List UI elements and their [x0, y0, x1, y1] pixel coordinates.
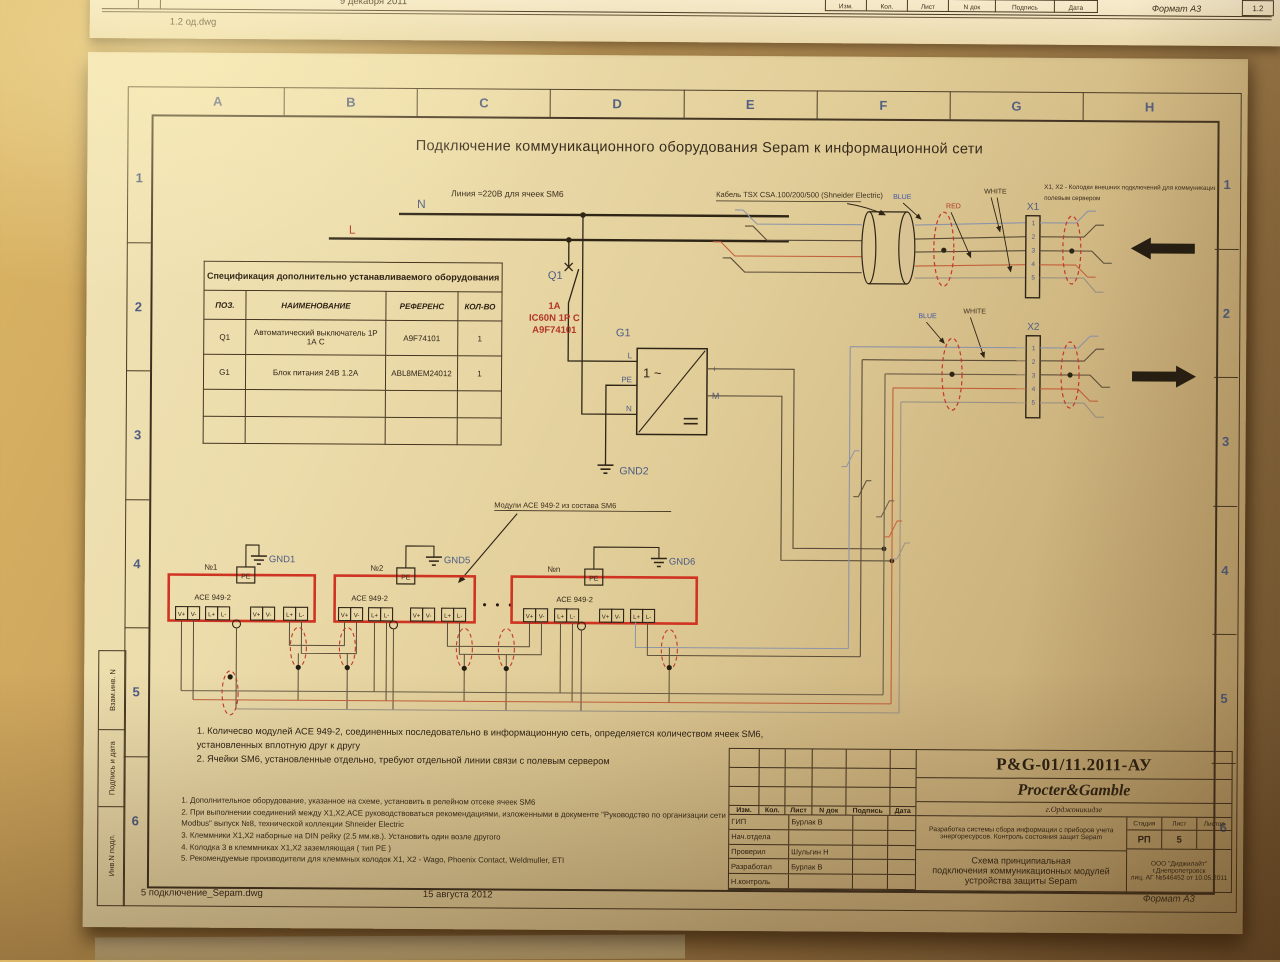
company-name: Procter&Gamble [916, 778, 1231, 804]
terminal-label: L+ [444, 614, 451, 620]
x2-pin-numbers: 12345 [1032, 345, 1036, 406]
revision-empty-cell [730, 749, 760, 767]
signature-role: ГИП [729, 815, 789, 829]
x-note-line1: X1, X2 - Колодки внешних подключений для… [1044, 183, 1215, 192]
signature-role: Нач.отдела [729, 830, 789, 844]
frame-column-letter: A [152, 86, 284, 115]
terminal-label: L- [570, 614, 575, 620]
cable-leader-arrow [847, 204, 885, 215]
frame-row-number: 4 [124, 499, 149, 628]
revision-header-cell: Дата [890, 807, 915, 815]
wire-N-label: N [417, 197, 426, 211]
revision-empty-cell [846, 788, 890, 806]
x1-pin-numbers: 12345 [1031, 220, 1035, 281]
paper-edge-bottom [95, 934, 685, 961]
top-sheet: Изм.Кол.ЛистN докПодписьДата 1.2 9 декаб… [90, 0, 1280, 46]
stage-header-cell: Листов [1197, 818, 1231, 830]
terminal-label: L+ [633, 615, 640, 621]
stage-header-cell: Стадия [1127, 817, 1162, 829]
pe-ground-wire [594, 547, 659, 569]
side-stamp-cells: Взам.инв. NПодпись и датаИнв.N подл. [97, 650, 127, 906]
stage-values: РП5 [1127, 830, 1231, 850]
g1-terminal-PE: PE [621, 375, 632, 384]
top-sheet-number: 1.2 [1242, 0, 1274, 16]
pin-number: 4 [1031, 261, 1035, 268]
revision-empty-cell [890, 788, 915, 806]
modules-note-underline [494, 510, 671, 511]
terminal-label: L- [646, 615, 651, 621]
revision-empty-row [730, 768, 916, 788]
line220-label: Линия ≈220В для ячеек SM6 [451, 188, 564, 199]
blue-label-x1: BLUE [893, 194, 912, 201]
signature-date [888, 860, 915, 874]
project-description: Разработка системы сбора информации с пр… [916, 816, 1126, 851]
ground-icon [426, 557, 442, 565]
title-block-signatures: Изм.Кол.ЛистN докПодписьДата ГИПБурлак В… [729, 749, 917, 890]
pin-number: 2 [1032, 359, 1036, 366]
x2-right-wires [1040, 336, 1110, 417]
stage-value-cell: 5 [1162, 831, 1197, 849]
frame-column-letter: G [949, 91, 1082, 120]
side-stamp-cell: Взам.инв. N [99, 651, 125, 730]
terminal-label: V- [191, 612, 197, 618]
revision-empty-cell [760, 749, 786, 767]
signature-sign [853, 845, 888, 859]
revision-empty-cell [760, 768, 786, 786]
revision-empty-cell [786, 787, 812, 805]
terminal-label: V- [426, 614, 432, 620]
top-sheet-date: 9 декабря 2011 [340, 0, 407, 7]
terminal-label: L+ [557, 614, 564, 620]
twisted-pair-symbols [222, 627, 678, 718]
module-number: №1 [204, 563, 218, 572]
cable-label-underline [716, 201, 861, 202]
blue-label-x2: BLUE [918, 313, 937, 320]
terminal-label: L- [221, 612, 226, 618]
terminal-label: V+ [341, 613, 349, 619]
title-block-main: P&G-01/11.2011-АУ Procter&Gamble г.Орджо… [916, 750, 1232, 892]
revision-empty-cell [786, 768, 812, 786]
side-stamp-cell: Подпись и дата [98, 730, 124, 807]
frame-column-letter: E [683, 90, 816, 119]
terminal-label: L+ [371, 613, 378, 619]
wire-color-leaders-x2 [926, 317, 984, 357]
arrow-left-icon [1131, 237, 1195, 259]
revision-empty-row [730, 749, 916, 769]
frame-column-letter: F [816, 90, 949, 119]
signature-role: Н.контроль [729, 874, 789, 888]
frame-row-number: 5 [124, 627, 149, 756]
signature-role: Проверил [729, 845, 789, 859]
sheet-title: Схема принципиальная подключения коммуни… [916, 850, 1126, 891]
top-sheet-stamp-col: Изм. [825, 0, 867, 11]
module-number: №2 [370, 564, 384, 573]
frame-column-letter: B [284, 87, 417, 116]
top-sheet-stamp-col: Кол. [867, 0, 908, 12]
revision-header-cell: Кол. [760, 806, 786, 814]
stage-header-cell: Лист [1162, 818, 1197, 830]
footer-date: 15 августа 2012 [423, 889, 493, 900]
signature-name: Бурлак В [789, 860, 853, 874]
frame-column-letter: H [1082, 92, 1215, 121]
main-sheet: ABCDEFGH 123456 123456 Взам.инв. NПодпис… [83, 52, 1248, 934]
terminal-label: L- [384, 613, 389, 619]
x2-label: X2 [1027, 322, 1040, 333]
revision-header-cell: Лист [786, 806, 812, 814]
pin-number: 1 [1032, 345, 1036, 352]
frame-row-number: 6 [123, 756, 148, 885]
organization: ООО "Диджилайт" г.Днепропетровск лиц. АГ… [1127, 849, 1231, 892]
description-cells: Разработка системы сбора информации с пр… [916, 816, 1127, 891]
module-number: №n [547, 565, 560, 574]
revision-empty-cell [890, 769, 915, 787]
top-sheet-format: Формат А3 [1152, 3, 1201, 13]
red-label-x1: RED [946, 203, 961, 210]
frame-column-letter: D [550, 89, 683, 118]
frame-row-number: 2 [126, 242, 151, 371]
terminal-label: V+ [413, 613, 421, 619]
x1-right-wires [1040, 211, 1112, 292]
revision-empty-cell [730, 768, 760, 786]
signature-name: Бурлак В [789, 815, 853, 829]
side-stamp-label: Взам.инв. N [107, 669, 116, 711]
x1-label: X1 [1027, 202, 1040, 213]
terminal-label: L+ [208, 612, 215, 618]
revision-empty-cell [812, 749, 846, 767]
q1-rating: 1А [548, 301, 560, 312]
terminal-label: V+ [253, 613, 261, 619]
ground-icon [651, 558, 667, 566]
cable-symbol [713, 210, 915, 284]
revision-empty-cell [847, 750, 891, 768]
signature-date [888, 831, 915, 845]
x2-feed-wires [850, 338, 1026, 411]
frame-row-number: 3 [125, 370, 150, 499]
modules-note: Модули АСЕ 949-2 из состава SM6 [494, 500, 616, 510]
pin-number: 4 [1032, 386, 1036, 393]
q1-label: Q1 [548, 270, 563, 282]
modules-note-arrow [459, 513, 517, 582]
module-device-name: АСЕ 949-2 [351, 594, 388, 603]
module-device-name: АСЕ 949-2 [556, 595, 593, 604]
wire-L-label: L [349, 223, 356, 237]
revision-rows [729, 749, 915, 807]
signature-row: ГИПБурлак В [729, 815, 915, 831]
ace-modules: №1АСЕ 949-2PEGND1V+V-L+L-V+V-L+L-№2АСЕ 9… [168, 545, 696, 631]
signature-role: Разработал [729, 859, 789, 873]
pe-terminal-label: PE [401, 574, 411, 581]
terminal-label: V- [539, 614, 545, 620]
signature-row: Нач.отдела [729, 830, 915, 846]
pin-number: 2 [1032, 234, 1036, 241]
revision-empty-cell [846, 769, 890, 787]
frame-row-number: 1 [127, 114, 152, 242]
stage-headers: СтадияЛистЛистов [1127, 817, 1231, 831]
stage-value-cell: РП [1127, 830, 1162, 848]
signature-row: РазработалБурлак В [729, 859, 915, 875]
signature-sign [853, 860, 888, 874]
pin-number: 1 [1032, 220, 1036, 227]
stage-value-cell [1197, 831, 1231, 849]
g1-terminal-L: L [628, 351, 633, 360]
trunk-risers [840, 347, 911, 713]
side-stamp-label: Инв.N подл. [106, 834, 115, 876]
revision-empty-cell [729, 787, 759, 805]
q1-ref: A9F74101 [532, 325, 577, 336]
top-sheet-stamp-col: Подпись [996, 0, 1055, 13]
ground-label: GND5 [444, 555, 470, 566]
terminal-label: L- [299, 613, 304, 619]
side-stamp-cell: Инв.N подл. [98, 807, 125, 903]
terminal-label: L- [457, 614, 462, 620]
terminal-label: V+ [178, 612, 186, 618]
module-device-name: АСЕ 949-2 [194, 593, 231, 602]
pin-number: 3 [1032, 372, 1036, 379]
pe-terminal-label: PE [241, 573, 251, 580]
revision-header-cell: Подпись [846, 807, 890, 815]
signature-name: Шульгин Н [789, 845, 853, 859]
terminal-label: L+ [286, 613, 293, 619]
top-sheet-filename: 1.2 од.dwg [170, 17, 217, 28]
breaker-q1-symbol [564, 240, 638, 361]
revision-header-cell: N док [812, 806, 846, 814]
signature-rows: ГИПБурлак ВНач.отделаПроверилШульгин НРа… [729, 815, 915, 890]
power-lines [329, 211, 789, 244]
terminal-label: V- [615, 615, 621, 621]
top-sheet-stamp-header: Изм.Кол.ЛистN докПодписьДата [825, 0, 1098, 13]
x1-feed-wires [915, 212, 1026, 287]
terminal-label: V- [354, 613, 360, 619]
top-sheet-stamp-col: N док [949, 0, 996, 12]
top-sheet-stamp-col: Дата [1055, 0, 1098, 13]
g1-label: G1 [616, 327, 631, 339]
terminal-block-x1 [1026, 216, 1041, 298]
signature-sign [853, 816, 888, 830]
g1-terminal-N: N [626, 404, 632, 413]
signature-name [789, 830, 853, 844]
top-sheet-stamp-col: Лист [908, 0, 949, 12]
terminal-label: V- [266, 613, 272, 619]
signature-date [888, 875, 915, 889]
revision-empty-cell [760, 787, 786, 805]
revision-empty-cell [786, 749, 812, 767]
pin-number: 5 [1032, 400, 1036, 407]
pe-terminal-label: PE [589, 576, 599, 583]
g1-ac-symbol: 1 ~ [643, 365, 662, 380]
white-label-x2: WHITE [963, 308, 986, 315]
revision-empty-cell [812, 787, 846, 805]
ground-icon [251, 556, 267, 564]
signature-row: ПроверилШульгин Н [729, 845, 915, 861]
q1-type: IC60N 1Р С [529, 313, 580, 324]
ground-label: GND6 [669, 557, 695, 568]
ace-module: №nАСЕ 949-2PEGND6V+V-L+L-V+V-L+L- [511, 547, 697, 631]
title-block: Изм.Кол.ЛистN докПодписьДата ГИПБурлак В… [728, 748, 1233, 893]
revision-empty-cell [812, 768, 846, 786]
pin-number: 5 [1031, 275, 1035, 282]
stage-org-cells: СтадияЛистЛистов РП5 ООО "Диджилайт" г.Д… [1127, 817, 1231, 892]
document-number: P&G-01/11.2011-АУ [917, 750, 1232, 780]
signature-name [789, 875, 853, 889]
signature-date [889, 816, 916, 830]
top-sheet-tick [138, 0, 139, 8]
frame-column-letter: C [417, 88, 550, 117]
pin-number: 3 [1031, 247, 1035, 254]
side-stamp-label: Подпись и дата [107, 741, 116, 795]
footer-filename: 5 подключение_Sepam.dwg [141, 887, 263, 899]
ace-module: №1АСЕ 949-2PEGND1V+V-L+L-V+V-L+L- [168, 545, 315, 629]
footer-format: Формат А3 [1143, 893, 1195, 904]
x-note-line2: полевым сервером [1044, 195, 1100, 202]
signature-sign [853, 831, 888, 845]
signature-date [888, 846, 915, 860]
terminal-label: V+ [526, 614, 534, 620]
revision-empty-cell [890, 750, 915, 768]
top-sheet-tick [160, 0, 161, 8]
cable-label: Кабель TSX CSA.100/200/500 (Shneider Ele… [716, 190, 883, 200]
revision-empty-row [729, 787, 915, 807]
terminal-label: V+ [602, 615, 610, 621]
dc-output-wires [706, 369, 896, 564]
ground-label: GND1 [269, 554, 295, 565]
arrow-right-icon [1132, 365, 1196, 387]
ace-module: №2АСЕ 949-2PEGND5V+V-L+L-V+V-L+L- [334, 546, 475, 630]
module-wiring [181, 620, 900, 713]
white-label-x1: WHITE [984, 188, 1007, 195]
revision-header-cell: Изм. [729, 806, 759, 814]
gnd2-label: GND2 [619, 465, 648, 477]
signature-sign [853, 875, 888, 889]
psu-g1-symbol [581, 215, 708, 474]
